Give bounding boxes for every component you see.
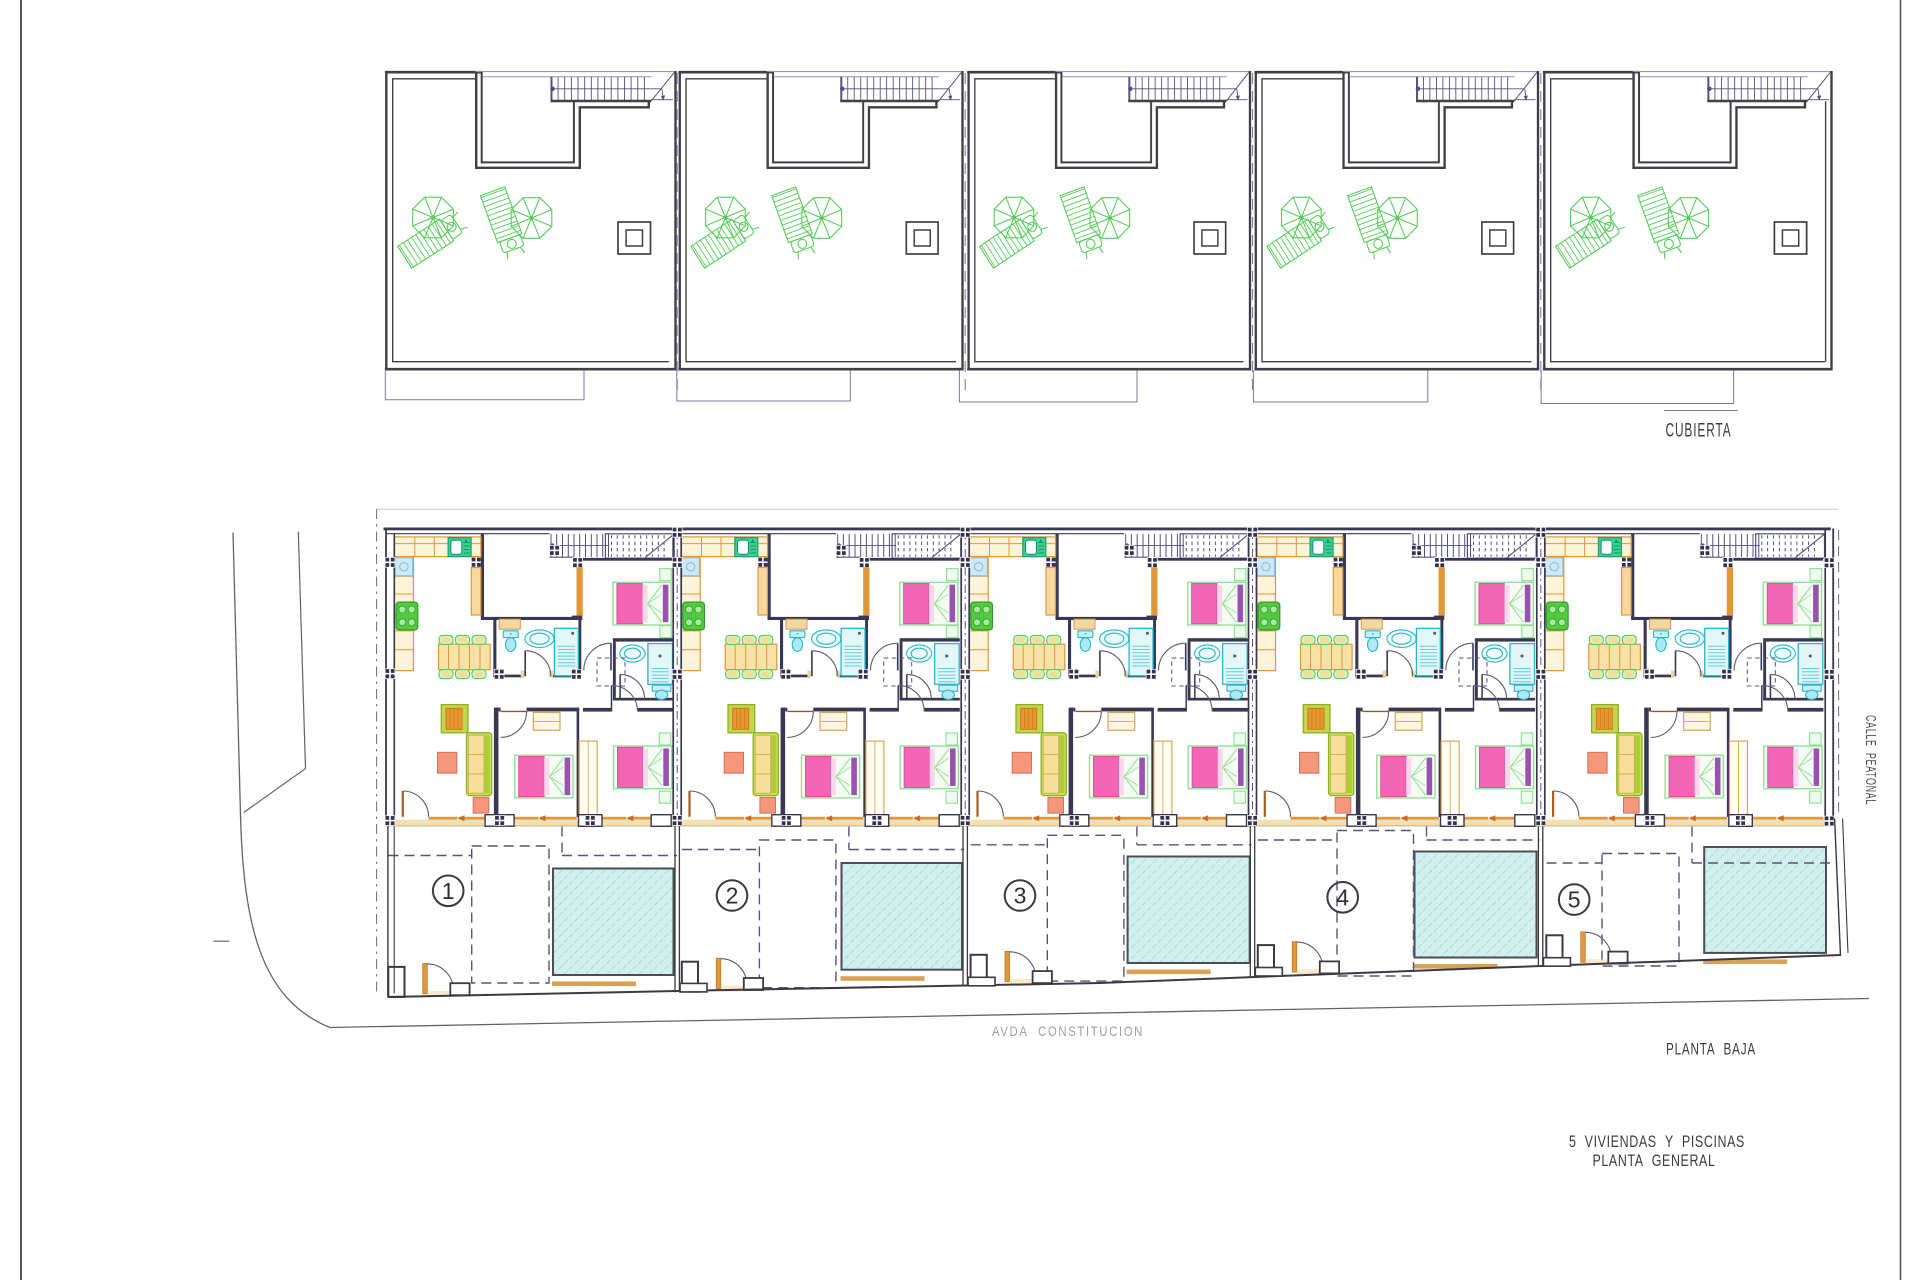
svg-text:PLANTA BAJA: PLANTA BAJA	[1666, 1040, 1756, 1059]
svg-text:5 VIVIENDAS Y PISCINAS: 5 VIVIENDAS Y PISCINAS	[1569, 1133, 1745, 1151]
svg-text:CUBIERTA: CUBIERTA	[1666, 421, 1732, 442]
svg-text:3: 3	[1014, 883, 1027, 909]
svg-text:5: 5	[1568, 887, 1581, 913]
svg-text:CALLE PEATONAL: CALLE PEATONAL	[1862, 715, 1878, 805]
svg-text:1: 1	[442, 878, 455, 904]
svg-text:AVDA CONSTITUCION: AVDA CONSTITUCION	[992, 1023, 1144, 1039]
svg-text:4: 4	[1336, 884, 1349, 910]
svg-text:2: 2	[726, 883, 739, 909]
svg-text:PLANTA GENERAL: PLANTA GENERAL	[1593, 1152, 1716, 1170]
